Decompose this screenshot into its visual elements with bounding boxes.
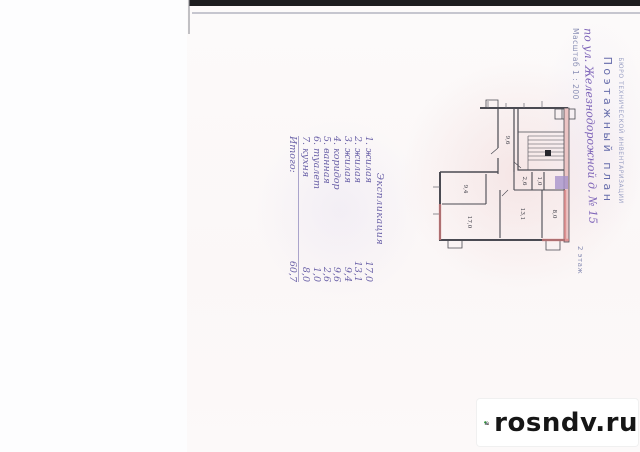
area-value: 13,1 [352,261,362,282]
room-label: 2,6 [521,177,527,186]
room-label: 13,1 [519,208,525,220]
area-value: 8,0 [300,267,310,282]
marker-patch [555,176,568,189]
rosndv-watermark[interactable]: rosndv.ru [477,399,638,446]
explication-row: 7. кухня 8,0 [300,136,310,282]
room-label: 17,0 [466,216,472,229]
area-value: 2,6 [321,267,331,282]
floor-plan-drawing: 9,4 17,0 13,1 2,6 1,0 8,0 9,6 [418,92,588,262]
area-value: 9,4 [341,267,351,282]
area-value: 9,6 [331,267,341,282]
room-area-labels: 9,4 17,0 13,1 2,6 1,0 8,0 9,6 [462,136,557,229]
area-value: 1,0 [310,267,320,282]
plan-walls [433,100,575,250]
room-label: 8,0 [551,210,557,219]
explication-row: 2. жилая 13,1 [352,136,362,282]
explication-row: 6. туалет 1,0 [310,136,320,282]
explication-list: Экспликация 1. жилая 17,0 2. жилая 13,1 … [286,136,384,282]
highlighted-walls [440,190,569,240]
total-value: 60,7 [286,261,296,282]
total-label: Итого: [286,136,296,173]
explication-row: 1. жилая 17,0 [362,136,372,282]
watermark-text: rosndv.ru [494,408,638,438]
room-label: 9,6 [504,136,510,145]
explication-title: Экспликация [374,136,384,282]
room-label: 9,4 [462,185,468,194]
house-with-tree-icon [484,404,489,442]
paper-left-edge [188,0,190,34]
explication-row: 4. коридор 9,6 [331,136,341,282]
stamp-org-line: БЮРО ТЕХНИЧЕСКОЙ ИНВЕНТАРИЗАЦИИ [617,28,624,233]
area-value: 17,0 [362,261,372,282]
room-label: 1,0 [536,177,542,186]
stamp-title: Поэтажный план [601,28,614,233]
stair-landing-mark [545,150,551,156]
explication-total-row: Итого: 60,7 [286,136,298,282]
explication-row: 3. жилая 9,4 [341,136,351,282]
explication-row: 5. ванная 2,6 [321,136,331,282]
